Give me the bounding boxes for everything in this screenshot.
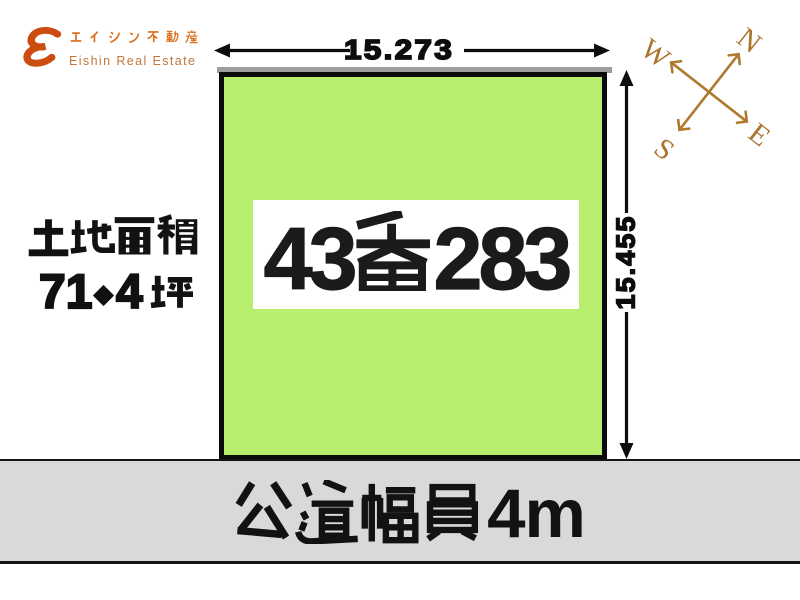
svg-text:W: W [635, 33, 677, 75]
svg-text:71: 71 [39, 266, 92, 319]
svg-text:15.273: 15.273 [344, 34, 454, 65]
svg-text:15.455: 15.455 [613, 215, 641, 310]
svg-text:4: 4 [116, 266, 143, 319]
svg-text:S: S [648, 132, 680, 167]
svg-text:Eishin Real Estate: Eishin Real Estate [69, 54, 196, 68]
